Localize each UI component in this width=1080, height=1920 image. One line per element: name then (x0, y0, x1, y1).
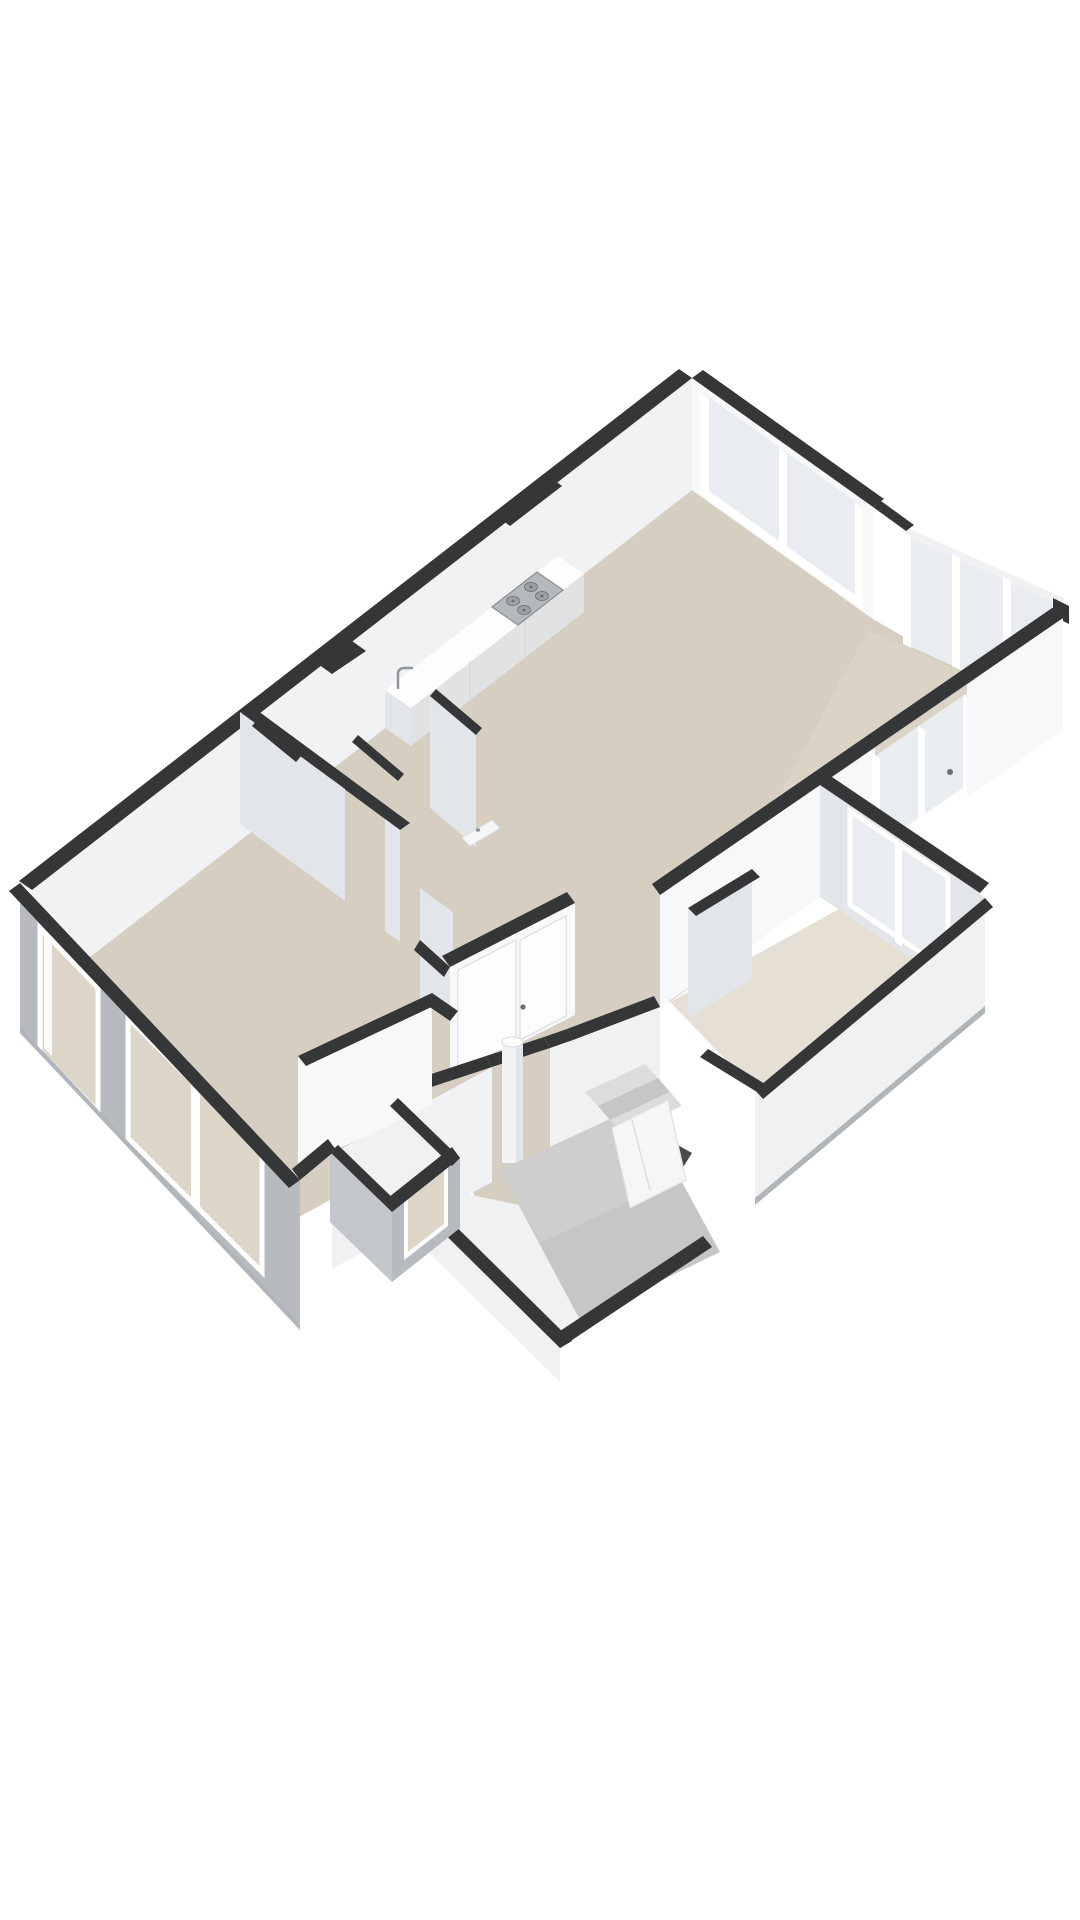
balcony-post-1 (903, 532, 911, 648)
column-top (502, 1037, 523, 1047)
gas-hob-burner-dot-2 (529, 586, 532, 588)
column-shade (516, 1044, 523, 1163)
ne-glass-mullion-mid (779, 448, 787, 557)
gas-hob-burner-dot-3 (522, 609, 525, 611)
ne-glass-mullion-right (855, 502, 863, 611)
washbasin-faucet (476, 828, 480, 832)
ne-glass-mullion-left (700, 392, 709, 501)
floorplan-canvas (0, 0, 1080, 1920)
balcony-corner-cap (873, 501, 914, 531)
bedroom-window-2-mullion (191, 1081, 200, 1210)
bath-door-handle (520, 1004, 525, 1009)
balcony-door-handle (947, 769, 953, 775)
balcony-post-2 (952, 554, 960, 670)
gas-hob-burner-dot-1 (511, 600, 514, 602)
bedroom-window-1-reveal (44, 934, 52, 1056)
annex-window-mullion (895, 842, 902, 947)
floorplan-3d-render (0, 0, 1080, 1920)
gas-hob-burner-dot-4 (540, 595, 543, 597)
bedroom-ne-wall-face-b (385, 819, 400, 942)
